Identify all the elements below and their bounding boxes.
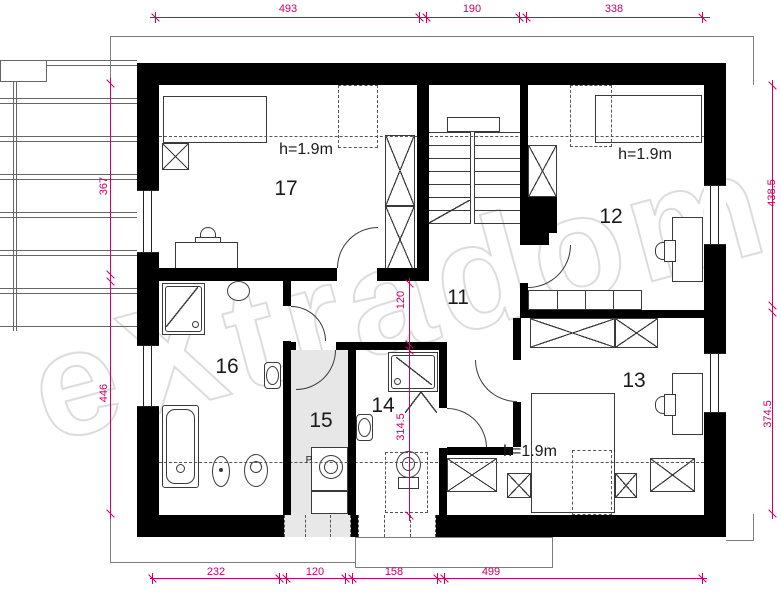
roof-window-room12 — [570, 85, 612, 147]
dim-label-left-367: 367 — [98, 166, 110, 206]
floor-plan: eXtradom — [0, 0, 781, 593]
roof-window-room13 — [572, 450, 612, 515]
eave-outline-top — [110, 36, 754, 37]
room-number-13: 13 — [617, 370, 651, 392]
wall-room17-bottom-left — [137, 268, 337, 281]
bidet-dot-room16 — [219, 468, 223, 472]
door-arc-room14 — [447, 408, 487, 448]
dim-line-left — [110, 83, 111, 513]
wall-room15-room14 — [348, 350, 356, 515]
knee-wall-window-mullion — [384, 515, 385, 537]
washbasin-room16-right-bowl — [266, 366, 279, 385]
dim-label-bottom-120: 120 — [291, 566, 339, 577]
wall-stairwell-right — [520, 85, 528, 245]
height-note-room13: h=1.9m — [491, 444, 569, 460]
dim-line-interior — [409, 281, 410, 517]
wardrobe-room13-top-left — [530, 318, 615, 348]
stairs-landing — [447, 117, 500, 132]
roof-window-room17 — [338, 85, 378, 148]
eave-outline-bottom-bay — [355, 537, 553, 568]
height-note-room12: h=1.9m — [606, 147, 684, 163]
dim-label-bottom-499: 499 — [467, 566, 515, 577]
wall-room15-room14-top — [336, 342, 447, 350]
dim-tick — [767, 508, 778, 519]
dim-line-right — [772, 85, 773, 513]
dim-tick — [421, 12, 432, 23]
chimney-block — [528, 197, 557, 233]
shower-door-left-room14 — [405, 392, 421, 413]
balcony-railing — [13, 60, 17, 331]
eave-outline-bottom-right-corner — [726, 514, 754, 541]
nightstand-room13-left — [507, 473, 531, 498]
nightstand-room17 — [162, 143, 189, 170]
wardrobe-room12 — [528, 145, 557, 197]
dim-label-right-374-5: 374.5 — [762, 390, 774, 438]
dim-label-left-446: 446 — [98, 373, 110, 413]
window-room13-right — [704, 353, 726, 413]
washer-label-room15: P — [303, 454, 315, 467]
counter-room15 — [311, 491, 348, 514]
dim-tick — [767, 80, 778, 91]
shower-drain-room16 — [192, 321, 199, 328]
balcony-deck — [0, 60, 137, 331]
eave-outline-right-top — [753, 36, 754, 85]
dim-label-bottom-232: 232 — [192, 566, 240, 577]
chair-seat-room12 — [664, 240, 676, 262]
dim-tick — [105, 508, 116, 519]
dim-tick — [404, 510, 415, 521]
dim-tick — [404, 345, 415, 356]
dresser-room13-left — [447, 458, 497, 492]
stairs-cut-line — [429, 200, 470, 223]
chair-seat-room13 — [664, 394, 676, 416]
window-room16-left — [137, 345, 159, 407]
wall-exterior-left — [137, 63, 159, 537]
wall-room16-right-upper — [283, 281, 291, 306]
dim-label-top-190: 190 — [446, 3, 498, 14]
balcony-step-box — [0, 60, 47, 82]
dim-tick — [150, 12, 161, 23]
desk-room12 — [672, 217, 703, 282]
wall-exterior-right — [704, 63, 726, 537]
room-number-12: 12 — [594, 206, 628, 228]
dresser-room13-right — [650, 458, 695, 492]
wall-exterior-top — [137, 63, 726, 85]
window-room12-right — [704, 185, 726, 245]
low-ceiling-zone-room14 — [385, 452, 428, 513]
bathtub-drain-room16 — [176, 464, 185, 473]
wall-room14-right-lower — [439, 448, 447, 515]
room-number-14: 14 — [366, 395, 400, 417]
room-number-17: 17 — [269, 178, 303, 200]
wall-hall-room13-lower — [513, 402, 521, 447]
dim-line-bottom — [150, 578, 707, 579]
dim-label-interior-120: 120 — [395, 280, 407, 320]
chimney-block-small — [528, 233, 549, 245]
shower-drain-room14 — [394, 378, 401, 385]
room-number-15: 15 — [304, 410, 338, 432]
height-note-room17: h=1.9m — [267, 142, 345, 158]
dim-tick — [439, 573, 450, 584]
wall-room12-room13 — [521, 310, 704, 318]
door-arc-room13 — [475, 360, 517, 402]
wardrobe-room17-upper — [385, 135, 415, 206]
stairs-divider — [470, 132, 475, 224]
shelf-divider — [585, 291, 586, 309]
washbasin-room16-top — [227, 281, 250, 301]
dim-tick — [105, 276, 116, 287]
knee-wall-window-room14 — [358, 515, 436, 537]
dim-label-bottom-158: 158 — [370, 566, 418, 577]
room-number-11: 11 — [441, 287, 475, 309]
dim-tick — [767, 307, 778, 318]
room-number-16: 16 — [210, 356, 244, 378]
wall-stairwell-left — [417, 85, 429, 281]
knee-wall-window-room15 — [284, 515, 351, 537]
knee-wall-window-mullion — [305, 515, 306, 537]
dim-tick — [697, 12, 708, 23]
wall-room16-right-lower — [283, 341, 291, 515]
ceiling-height-line-upper — [159, 136, 704, 137]
shower-diagonal-room14 — [396, 357, 432, 385]
shelf-divider — [613, 291, 614, 309]
ceiling-height-line-lower — [159, 462, 704, 463]
desk-room13 — [672, 373, 703, 435]
shelf-divider — [557, 291, 558, 309]
stairs-flight-right — [475, 132, 521, 224]
dim-tick — [105, 78, 116, 89]
wardrobe-room13-top-right — [615, 318, 658, 348]
shower-door-right-room14 — [421, 392, 437, 413]
dim-tick — [697, 573, 708, 584]
dim-tick — [147, 573, 158, 584]
dim-tick — [347, 573, 358, 584]
washbasin-bowl-room14 — [358, 418, 371, 437]
wall-room15-top-left — [291, 342, 296, 350]
eave-outline-bottom-left — [110, 562, 356, 563]
window-room17-left — [137, 190, 159, 253]
dim-tick — [521, 12, 532, 23]
knee-wall-window-mullion — [330, 515, 331, 537]
wall-hall-room13-upper — [513, 318, 521, 360]
wardrobe-room17-lower — [385, 206, 415, 273]
dim-label-top-493: 493 — [262, 3, 314, 14]
dim-label-top-338: 338 — [588, 3, 640, 14]
dim-label-right-438-5: 438.5 — [766, 169, 778, 217]
wall-room14-right-upper — [439, 350, 447, 408]
nightstand-room13-right — [615, 473, 637, 498]
